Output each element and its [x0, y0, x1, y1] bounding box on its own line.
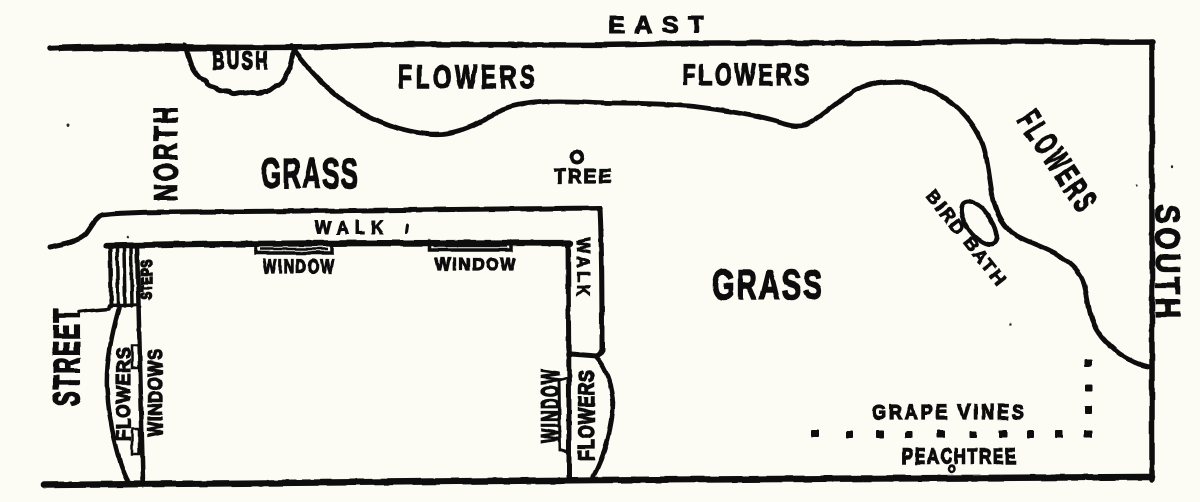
svg-text:SOUTH: SOUTH: [1148, 205, 1186, 322]
svg-text:GRASS: GRASS: [261, 150, 359, 197]
svg-text:GRAPE VINES: GRAPE VINES: [872, 401, 1027, 425]
svg-text:WALK: WALK: [573, 238, 594, 300]
svg-text:FLOWERS: FLOWERS: [398, 59, 539, 95]
svg-text:FLOWERS: FLOWERS: [575, 369, 600, 461]
svg-text:TREE: TREE: [554, 166, 613, 189]
svg-text:FLOWERS: FLOWERS: [682, 58, 812, 92]
svg-text:PEACHTREE: PEACHTREE: [902, 446, 1018, 470]
svg-text:WINDOW: WINDOW: [538, 368, 565, 443]
svg-text:GRASS: GRASS: [712, 262, 824, 308]
svg-text:WINDOW: WINDOW: [435, 255, 517, 274]
svg-text:EAST: EAST: [608, 13, 713, 39]
svg-text:BUSH: BUSH: [212, 47, 270, 75]
svg-text:STREET: STREET: [48, 307, 88, 406]
svg-text:WALK: WALK: [315, 217, 389, 238]
svg-text:STEPS: STEPS: [138, 260, 155, 300]
svg-text:WINDOWS: WINDOWS: [143, 348, 166, 437]
svg-text:NORTH: NORTH: [148, 104, 185, 201]
svg-text:WINDOW: WINDOW: [263, 255, 336, 278]
